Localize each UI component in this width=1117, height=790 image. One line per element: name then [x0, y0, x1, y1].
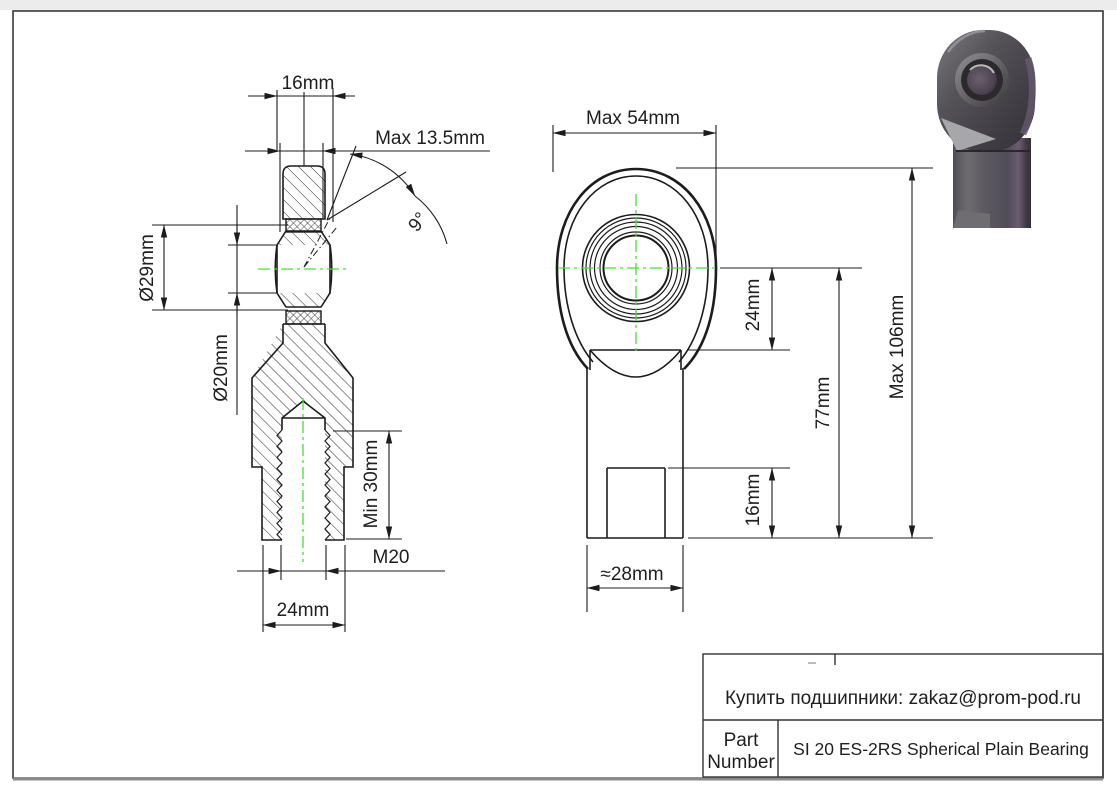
dim-16mm-label: 16mm [282, 73, 335, 94]
seal-top [286, 219, 321, 232]
page-top-margin [0, 0, 1117, 10]
housing-top-bar [283, 166, 325, 219]
part-number-label-line1: Part [724, 730, 760, 751]
dim-24mm-right-label: 24mm [743, 279, 764, 332]
contact-line: Купить подшипники: zakaz@prom-pod.ru [725, 688, 1081, 709]
dim-max54-label: Max 54mm [586, 108, 680, 129]
dim-d20-label: Ø20mm [211, 334, 232, 402]
dim-max106-label: Max 106mm [887, 295, 908, 400]
dim-m20-label: M20 [373, 547, 410, 568]
dim-16mm-right-label: 16mm [743, 474, 764, 527]
dim-min30-label: Min 30mm [361, 440, 382, 529]
part-number-value: SI 20 ES-2RS Spherical Plain Bearing [793, 739, 1089, 759]
part-number-label-line2: Number [707, 752, 775, 773]
seal-bottom [286, 311, 321, 324]
dim-max135-label: Max 13.5mm [375, 128, 485, 149]
drawing-page: 9° 16mm Max 13.5mm Ø29mm [0, 0, 1117, 790]
dim-24mm-left-label: 24mm [277, 600, 330, 621]
dim-approx28-label: ≈28mm [600, 564, 663, 585]
technical-drawing-svg: 9° 16mm Max 13.5mm Ø29mm [0, 0, 1117, 790]
dim-d29-label: Ø29mm [137, 234, 158, 302]
dim-77mm-label: 77mm [813, 377, 834, 430]
